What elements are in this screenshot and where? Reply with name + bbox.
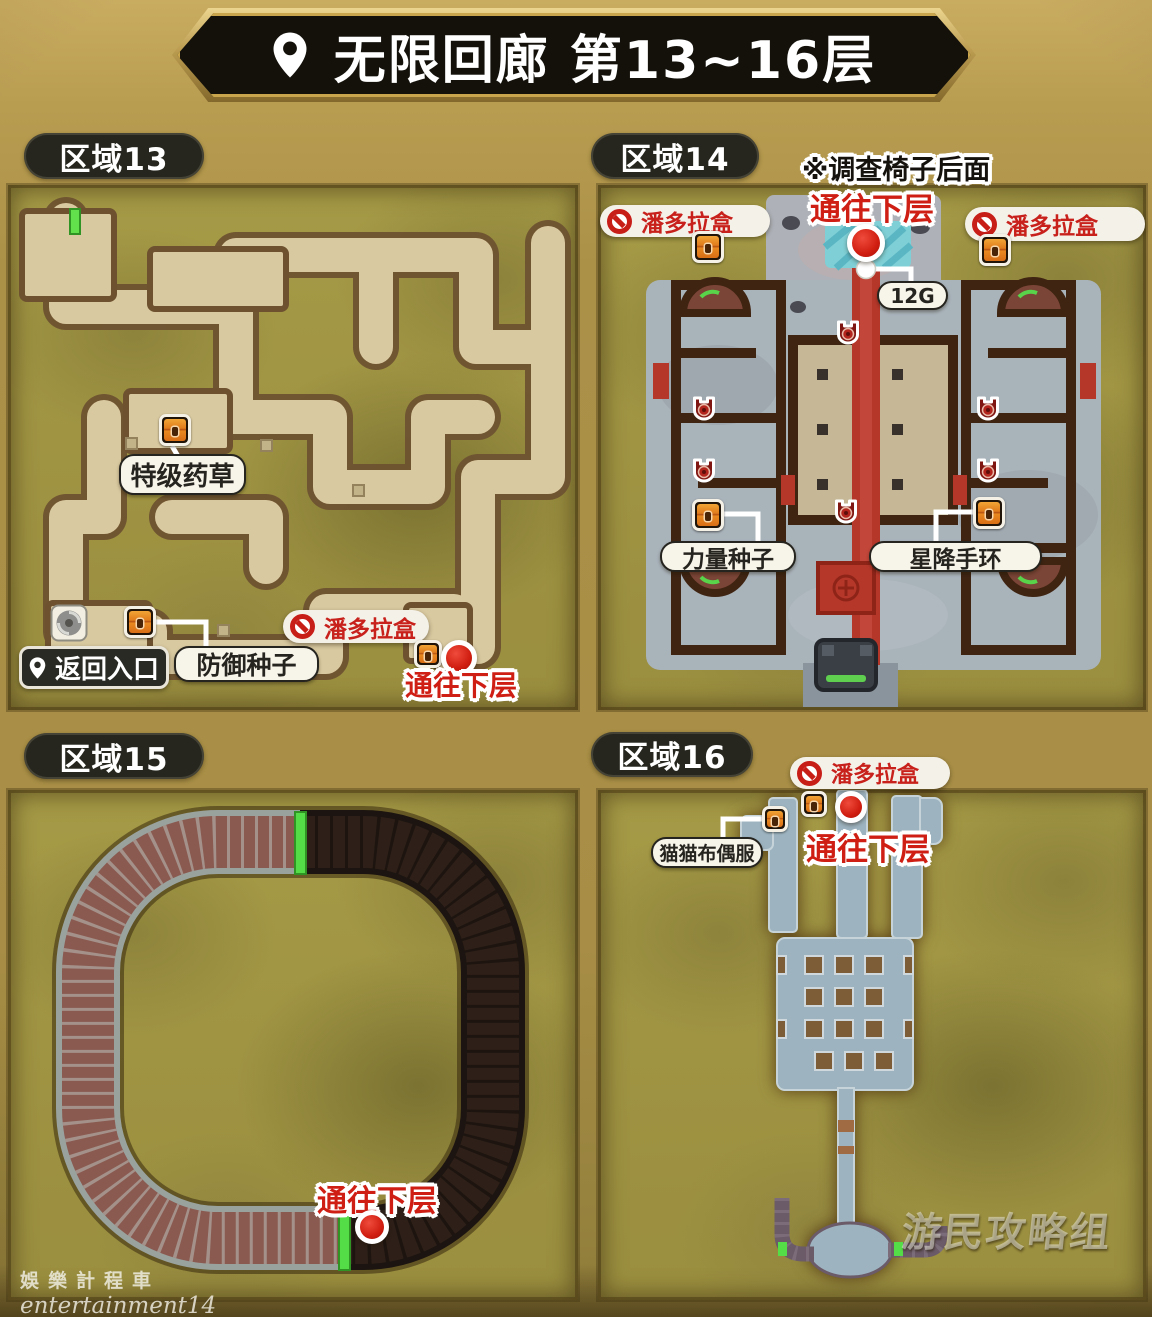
area15-ring-map xyxy=(8,790,578,1300)
pot-icon xyxy=(691,394,717,422)
herb-label-text: 特级药草 xyxy=(130,456,234,493)
area14-map-panel xyxy=(598,185,1146,710)
no-entry-icon xyxy=(972,212,997,237)
return-entrance-text: 返回入口 xyxy=(55,649,159,686)
entrance-marker-green xyxy=(70,209,80,234)
teleporter-icon xyxy=(50,604,88,642)
power-seed-text: 力量种子 xyxy=(682,540,774,574)
costume-text: 猫猫布偶服 xyxy=(659,839,754,866)
pot-icon xyxy=(975,394,1001,422)
chest-icon-area16-top xyxy=(801,791,827,817)
boss-platform xyxy=(818,563,874,613)
stairs-marker-area14 xyxy=(847,224,885,262)
pandora-text-area14-right: 潘多拉盒 xyxy=(1006,207,1098,241)
chest-icon-area14-topleft xyxy=(692,231,724,263)
power-seed-pill: 力量种子 xyxy=(660,541,796,572)
pandora-text-area13: 潘多拉盒 xyxy=(324,610,416,644)
chair-note-area14: ※调查椅子后面 xyxy=(802,148,990,187)
pandora-text-area16: 潘多拉盒 xyxy=(831,757,919,789)
watermark-taxi-cn: 娛樂計程車 xyxy=(20,1266,216,1293)
area14-dungeon-map xyxy=(598,185,1146,710)
watermark-taxi-en: entertainment14 xyxy=(20,1293,216,1317)
area16-label-text: 区域16 xyxy=(617,732,726,777)
stairs-label-area13: 通往下层 xyxy=(405,664,517,704)
gold-12g-pill: 12G xyxy=(877,281,948,310)
guide-page: 无限回廊 第13~16层 区域13 区域14 区域15 区域16 xyxy=(0,0,1152,1317)
chest-icon-herb xyxy=(159,414,191,446)
watermark-gamersky: 游民攻略组 xyxy=(899,1200,1115,1258)
chest-icon-costume xyxy=(762,806,788,832)
stairs-label-area14: 通往下层 xyxy=(810,184,934,229)
pandora-pill-area13: 潘多拉盒 xyxy=(283,610,429,643)
return-entrance-pill: 返回入口 xyxy=(19,646,169,689)
defence-seed-text: 防御种子 xyxy=(196,646,296,682)
pandora-pill-area16: 潘多拉盒 xyxy=(790,757,950,789)
entrance-pin-icon xyxy=(29,655,46,681)
chest-icon-defence-seed xyxy=(124,606,156,638)
costume-pill: 猫猫布偶服 xyxy=(651,837,763,868)
chest-icon-area14-topright xyxy=(979,234,1011,266)
pot-icon xyxy=(833,497,859,525)
header-banner: 无限回廊 第13~16层 xyxy=(172,8,976,102)
page-title: 无限回廊 第13~16层 xyxy=(334,18,876,93)
area16-label: 区域16 xyxy=(591,732,753,777)
location-pin-icon xyxy=(272,31,308,79)
watermark-taxi: 娛樂計程車 entertainment14 xyxy=(20,1266,216,1317)
area14-label: 区域14 xyxy=(591,133,759,179)
chest-icon-power-seed xyxy=(692,499,724,531)
area13-label: 区域13 xyxy=(24,133,204,179)
cart-dock xyxy=(816,640,876,690)
pot-icon xyxy=(975,456,1001,484)
stairs-marker-area16 xyxy=(835,791,867,823)
area15-label-text: 区域15 xyxy=(59,734,168,779)
stairs-marker-area15 xyxy=(355,1210,389,1244)
gold-12g-text: 12G xyxy=(890,284,934,308)
chest-icon-bracelet xyxy=(973,497,1005,529)
area14-label-text: 区域14 xyxy=(620,134,729,179)
no-entry-icon xyxy=(607,209,632,234)
hook-green-left xyxy=(778,1242,787,1256)
pot-icon xyxy=(691,456,717,484)
herb-label-pill: 特级药草 xyxy=(119,454,246,495)
no-entry-icon xyxy=(797,761,822,786)
bracelet-pill: 星降手环 xyxy=(869,541,1042,572)
area15-label: 区域15 xyxy=(24,733,204,779)
no-entry-icon xyxy=(290,614,315,639)
pot-icon xyxy=(835,318,861,346)
track-green-marker-top xyxy=(295,812,306,874)
pandora-pill-area14-left: 潘多拉盒 xyxy=(600,205,770,237)
area13-label-text: 区域13 xyxy=(59,134,168,179)
stairs-label-area16: 通往下层 xyxy=(806,824,930,869)
area15-map-panel xyxy=(8,790,578,1300)
defence-seed-pill: 防御种子 xyxy=(174,646,319,682)
bracelet-text: 星降手环 xyxy=(910,540,1002,574)
header-banner-inner: 无限回廊 第13~16层 xyxy=(177,13,971,97)
